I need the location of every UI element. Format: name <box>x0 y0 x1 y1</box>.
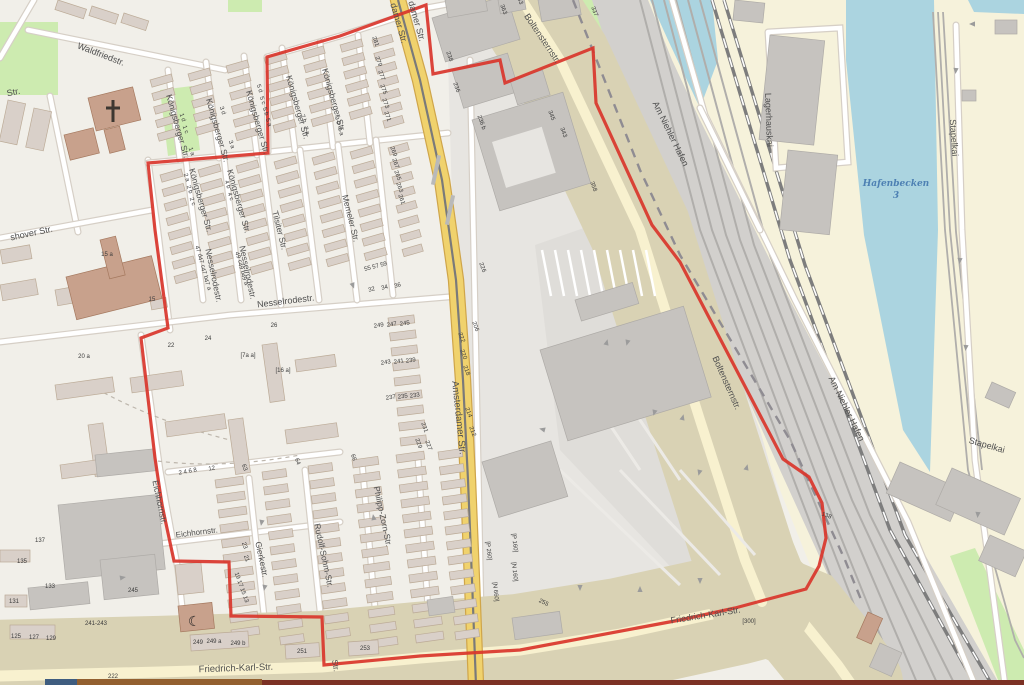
water-label: Hafenbecken <box>862 179 929 189</box>
water-label: 3 <box>893 191 899 201</box>
edge-building-maroon <box>262 680 1024 685</box>
house-number: 15 <box>149 297 156 303</box>
house-number: 133 <box>45 584 56 590</box>
edge-building-blue <box>45 679 77 685</box>
house-number: 249 b <box>230 641 246 647</box>
house-number: [16 a] <box>275 368 290 374</box>
house-number: [300] <box>742 619 756 625</box>
map-canvas[interactable]: ☾ damer Str.damer Str.Amsterdamer Str.Bo… <box>0 0 1024 685</box>
house-number: 245 <box>128 588 139 594</box>
house-number: 125 <box>11 634 22 640</box>
house-number: 131 <box>9 599 20 605</box>
house-number: 137 <box>35 538 46 544</box>
street-label: Lagerhauskai <box>763 93 775 147</box>
house-number: 241-243 <box>85 621 108 627</box>
house-number: 127 <box>29 635 40 641</box>
house-number: 22 <box>168 343 175 349</box>
house-number: 253 <box>360 646 371 652</box>
svg-text:☾: ☾ <box>188 614 201 630</box>
map-viewport[interactable]: ☾ damer Str.damer Str.Amsterdamer Str.Bo… <box>0 0 1024 685</box>
house-number: 24 <box>205 336 212 342</box>
house-number: 251 <box>297 649 308 655</box>
house-number: 20 a <box>78 354 90 360</box>
house-number: 129 <box>46 636 57 642</box>
house-number: 249 <box>193 640 204 646</box>
house-number: 26 <box>271 323 278 329</box>
edge-building-brown <box>77 679 262 685</box>
house-number: [7a a] <box>240 353 255 359</box>
house-number: 135 <box>17 559 28 565</box>
house-number: 249 a <box>206 639 222 645</box>
house-number: 15 a <box>101 252 113 258</box>
